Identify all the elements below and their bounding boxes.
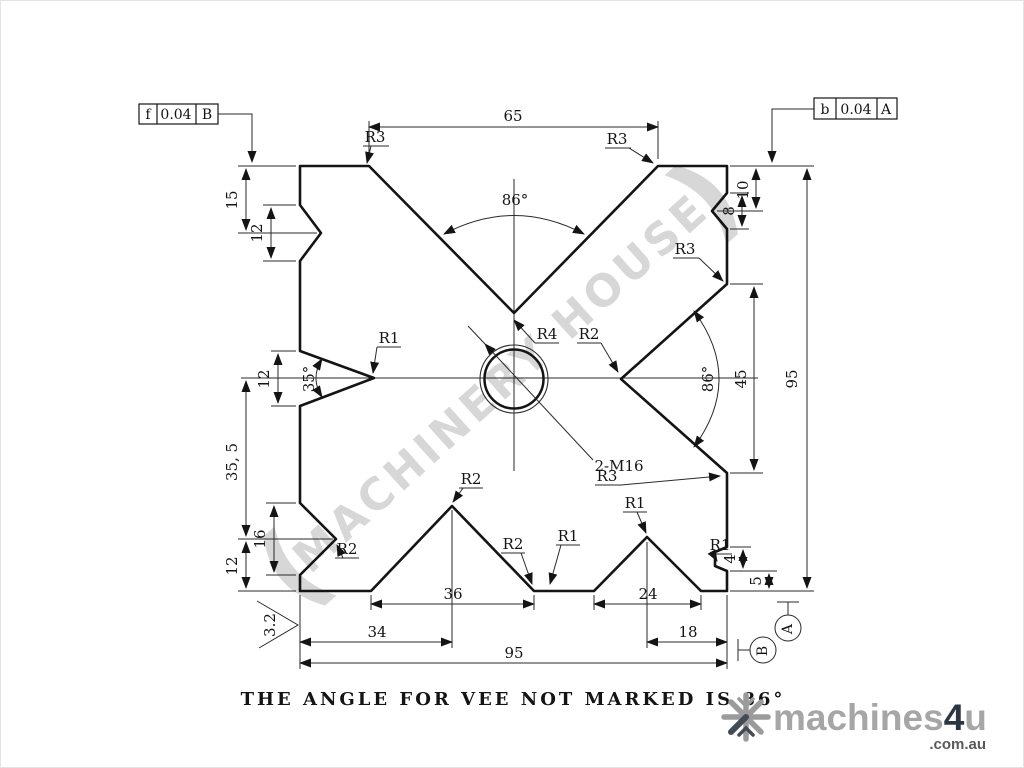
radius-lower-left-notch: R2 [337, 540, 358, 558]
radius-top-vee-tip: R4 [537, 325, 558, 343]
radius-vee2-tip: R1 [625, 494, 646, 512]
surface-finish-value: 3.2 [261, 613, 279, 637]
dim-top-vee-width: 65 [503, 107, 522, 125]
dim-left-mid-notch: 12 [255, 369, 273, 388]
fcf-right-symbol: b [821, 102, 830, 118]
dim-vee1-center-offset: 34 [367, 623, 386, 641]
dim-right-notch-height: 8 [720, 206, 738, 216]
radius-vee1-corner: R2 [503, 535, 524, 553]
note-text: THE ANGLE FOR VEE NOT MARKED IS 86° [241, 689, 786, 710]
watermark-text: MACHINERY HOUSE [283, 184, 719, 584]
angle-left-notch: 35° [300, 366, 318, 393]
datum-b-flag: B [738, 637, 776, 663]
dim-left-bottom-offset: 12 [223, 556, 241, 575]
dim-overall-width: 95 [504, 644, 523, 662]
radius-top-right: R3 [607, 130, 628, 148]
dim-left-lower-span: 35, 5 [223, 443, 241, 481]
dim-left-top-notch: 12 [248, 223, 266, 242]
dim-corner-notch-offset: 5 [747, 576, 765, 586]
angle-right-vee: 86° [699, 366, 717, 393]
tolerance-frame-left: f 0.04 B [139, 104, 218, 124]
dim-right-vee-opening: 45 [732, 369, 750, 388]
dim-corner-notch-height: 4 [721, 554, 739, 564]
dim-right-top-offset: 10 [734, 180, 752, 199]
dim-vee2-width: 24 [638, 585, 657, 603]
fcf-left-datum: B [202, 107, 212, 123]
dim-left-top-offset: 15 [223, 190, 241, 209]
fcf-right-value: 0.04 [840, 102, 871, 118]
logo-accent: 4 [944, 697, 965, 738]
tolerance-frame-right: b 0.04 A [814, 98, 897, 119]
dim-overall-height: 95 [783, 369, 801, 388]
dim-vee1-width: 36 [443, 585, 462, 603]
radius-bottom-mid: R1 [558, 527, 579, 545]
svg-text:machines4u: machines4u [773, 697, 987, 738]
radius-top-left: R3 [365, 128, 386, 146]
radius-right-vee-tip: R2 [579, 325, 600, 343]
die-block-drawing: ( MACHINERY HOUSE ) [1, 1, 1024, 768]
logo-suffix: u [964, 697, 987, 738]
fcf-left-value: 0.04 [160, 107, 191, 123]
datum-a-flag: A [775, 602, 801, 641]
radius-right-lower: R3 [597, 467, 618, 485]
radius-right-upper: R3 [675, 240, 696, 258]
dim-vee2-center-offset: 18 [678, 623, 697, 641]
datum-b-label: B [755, 646, 771, 656]
radius-corner-notch: R1 [710, 536, 731, 554]
surface-finish-symbol: 3.2 [257, 601, 298, 648]
snowflake-icon [724, 695, 768, 739]
drawing-page: ( MACHINERY HOUSE ) [0, 0, 1024, 768]
radius-vee1-tip: R2 [461, 470, 482, 488]
angle-top-vee: 86° [502, 191, 529, 209]
datum-a-label: A [780, 623, 796, 635]
radius-left-notch-tip: R1 [379, 329, 400, 347]
logo-name: machines [773, 697, 944, 738]
fcf-left-symbol: f [145, 107, 152, 123]
logo-domain: .com.au [929, 736, 986, 753]
fcf-right-datum: A [880, 102, 892, 118]
dim-left-lower-notch: 16 [251, 529, 269, 548]
